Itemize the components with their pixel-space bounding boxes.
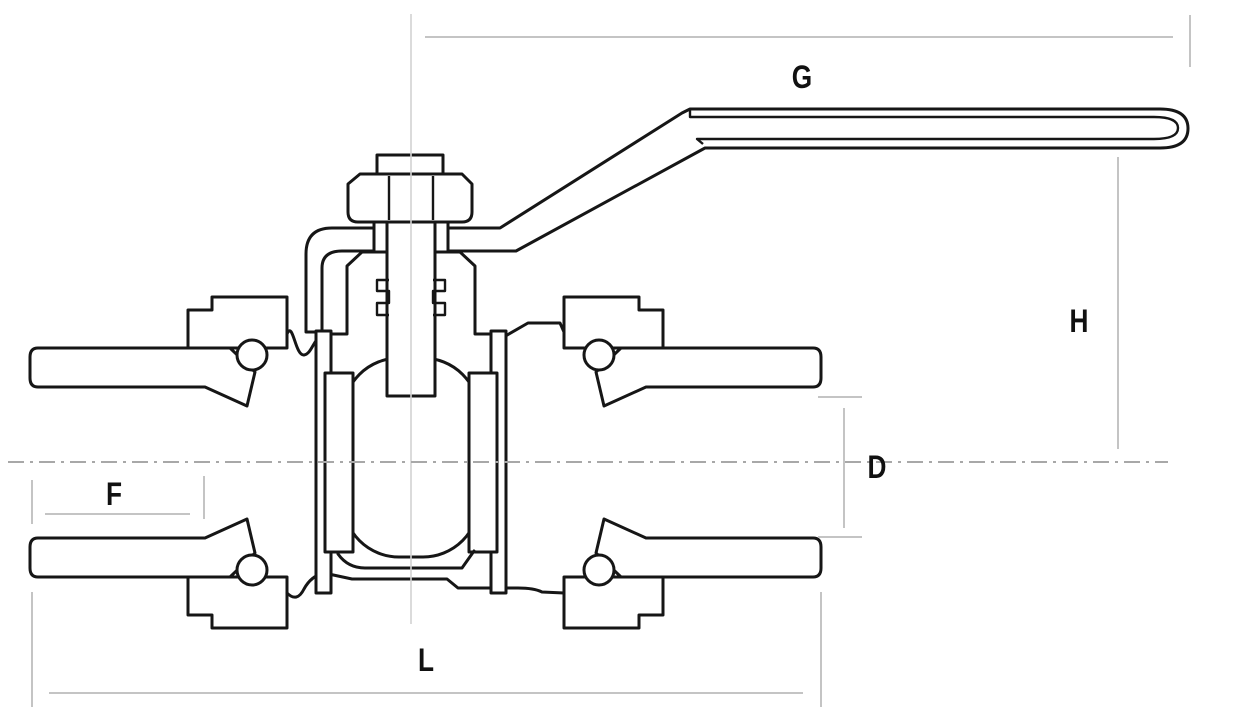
ball-valve-drawing: GHDFL (0, 0, 1244, 718)
dimension-label-l: L (418, 644, 434, 679)
union-nut-lower-right (564, 577, 663, 628)
valve-drawing (30, 109, 1188, 628)
seal-circle-lower-right (584, 555, 614, 585)
union-nut-lower-left (188, 577, 287, 628)
valve-diagram-canvas: GHDFL (0, 0, 1244, 718)
pipe-lower-right (596, 519, 821, 577)
dimension-label-h: H (1070, 305, 1089, 340)
seal-circle-upper-left (237, 340, 267, 370)
stem-cap (377, 155, 443, 174)
pipe-upper-left (30, 348, 255, 406)
seal-circle-upper-right (584, 340, 614, 370)
dimension-label-g: G (792, 61, 812, 96)
dimension-label-d: D (868, 451, 887, 486)
union-nut-upper-left (188, 297, 287, 348)
pipe-upper-right (596, 348, 821, 406)
union-nut-upper-right (564, 297, 663, 348)
hub-upper-right (502, 323, 564, 338)
seal-circle-lower-left (237, 555, 267, 585)
stem-nut (348, 174, 472, 222)
dimension-label-f: F (106, 478, 122, 513)
pipe-lower-left (30, 519, 255, 577)
